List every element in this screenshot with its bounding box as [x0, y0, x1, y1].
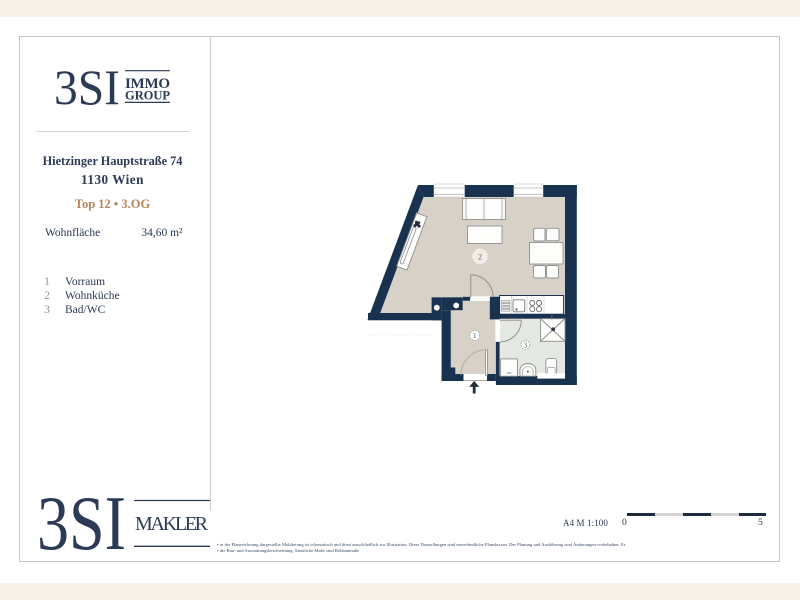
svg-text:1: 1 [473, 331, 477, 340]
svg-text:3SI: 3SI [37, 490, 126, 560]
svg-text:MAKLER: MAKLER [135, 513, 209, 535]
svg-text:2: 2 [478, 251, 482, 261]
svg-text:3: 3 [523, 341, 527, 350]
